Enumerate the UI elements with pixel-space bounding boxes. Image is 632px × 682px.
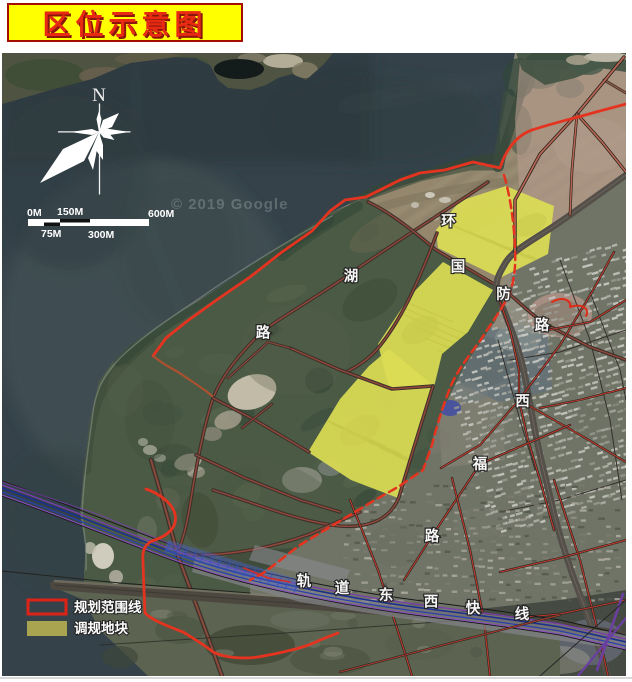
svg-text:75M: 75M [41,228,62,240]
svg-text:东: 东 [379,586,394,604]
svg-text:© 2019 Google: © 2019 Google [171,196,288,213]
svg-text:国: 国 [451,259,466,276]
svg-text:环: 环 [441,213,456,230]
svg-text:规划范围线: 规划范围线 [74,599,142,615]
svg-text:0M: 0M [27,207,42,219]
svg-text:轨: 轨 [297,572,312,590]
svg-text:西: 西 [515,393,530,410]
svg-text:道: 道 [335,579,350,597]
svg-text:快: 快 [466,599,481,617]
svg-text:150M: 150M [57,206,84,218]
svg-text:福: 福 [472,455,488,473]
svg-text:湖: 湖 [344,268,359,285]
svg-text:600M: 600M [148,208,175,220]
svg-text:调规地块: 调规地块 [74,620,128,636]
svg-text:300M: 300M [88,229,115,241]
svg-text:路: 路 [425,527,440,545]
svg-text:路: 路 [535,316,550,334]
svg-text:路: 路 [256,324,271,342]
svg-text:西: 西 [424,594,439,611]
svg-text:防: 防 [496,285,511,303]
svg-text:线: 线 [515,605,530,623]
svg-text:N: N [92,85,106,106]
